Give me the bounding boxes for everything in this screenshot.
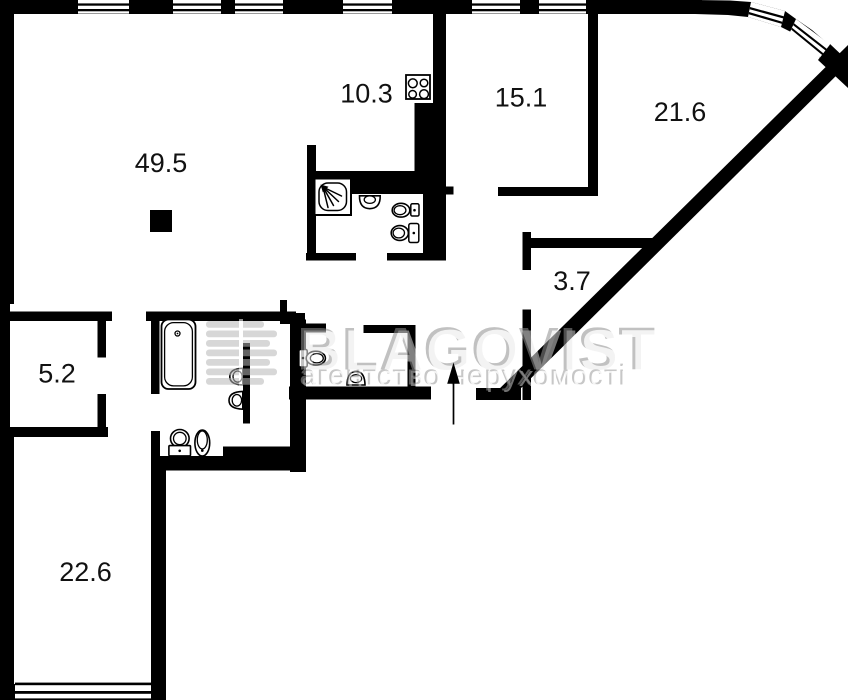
svg-text:агентство нерухомості: агентство нерухомості bbox=[302, 361, 628, 393]
svg-text:22.6: 22.6 bbox=[59, 557, 112, 587]
svg-text:49.5: 49.5 bbox=[135, 148, 188, 178]
svg-text:5.2: 5.2 bbox=[38, 359, 76, 389]
svg-text:15.1: 15.1 bbox=[495, 83, 548, 113]
svg-text:10.3: 10.3 bbox=[340, 79, 393, 109]
svg-text:3.7: 3.7 bbox=[553, 266, 591, 296]
svg-text:21.6: 21.6 bbox=[654, 97, 707, 127]
